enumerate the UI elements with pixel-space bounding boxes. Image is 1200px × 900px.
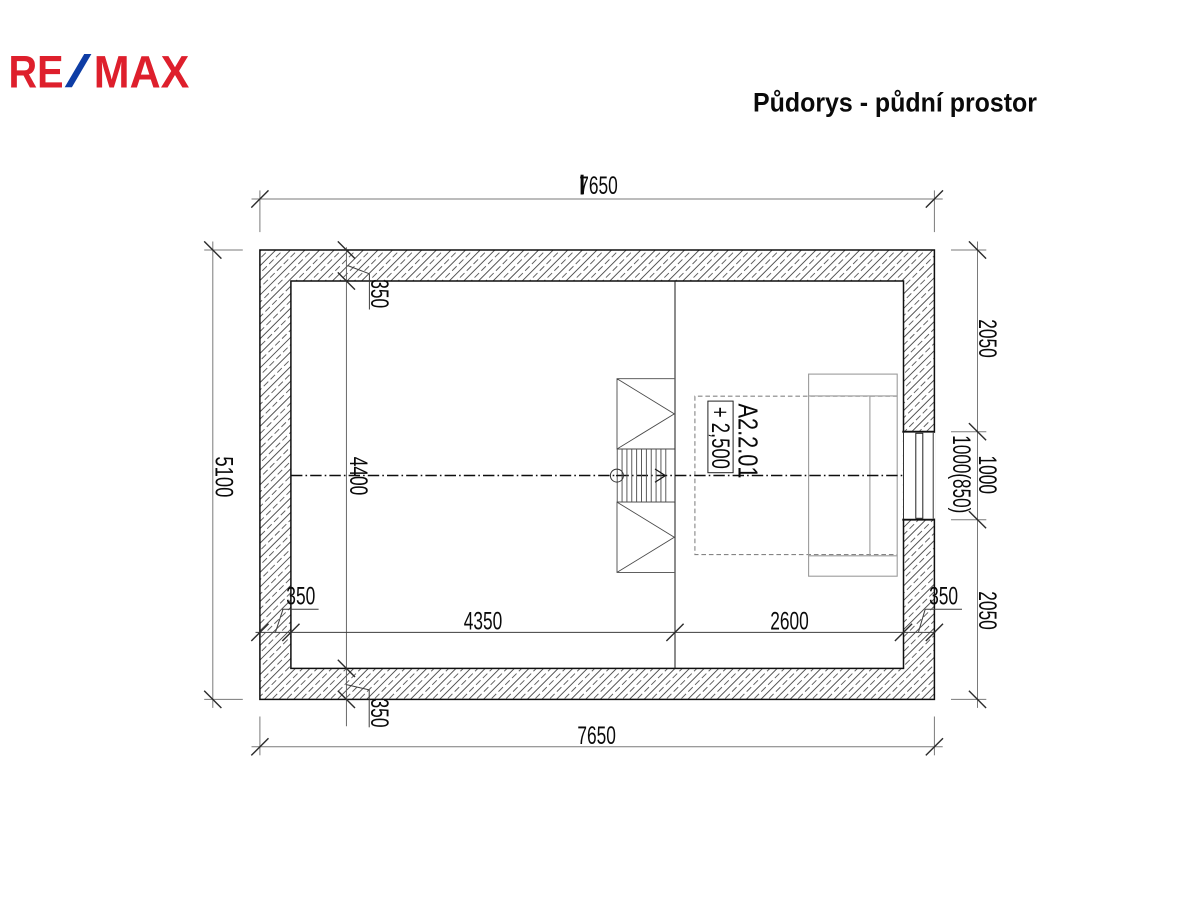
svg-text:7650: 7650 xyxy=(579,172,618,200)
svg-text:A2.2.01: A2.2.01 xyxy=(733,404,764,479)
svg-text:7650: 7650 xyxy=(577,722,616,750)
svg-text:MAX: MAX xyxy=(94,46,190,97)
svg-text:2600: 2600 xyxy=(770,608,809,636)
svg-text:350: 350 xyxy=(929,583,958,611)
svg-text:2050: 2050 xyxy=(973,591,1001,630)
svg-text:350: 350 xyxy=(365,699,393,728)
svg-text:Půdorys - půdní prostor: Půdorys - půdní prostor xyxy=(753,88,1037,118)
svg-text:350: 350 xyxy=(365,279,393,308)
svg-text:+ 2,500: + 2,500 xyxy=(706,407,734,469)
svg-text:4350: 4350 xyxy=(464,608,503,636)
svg-text:1000(850): 1000(850) xyxy=(947,435,975,513)
svg-text:2050: 2050 xyxy=(973,319,1001,358)
svg-text:RE: RE xyxy=(9,46,64,97)
svg-text:350: 350 xyxy=(286,583,315,611)
svg-text:4400: 4400 xyxy=(344,457,372,496)
svg-text:1000: 1000 xyxy=(973,456,1001,495)
svg-text:5100: 5100 xyxy=(210,456,238,497)
